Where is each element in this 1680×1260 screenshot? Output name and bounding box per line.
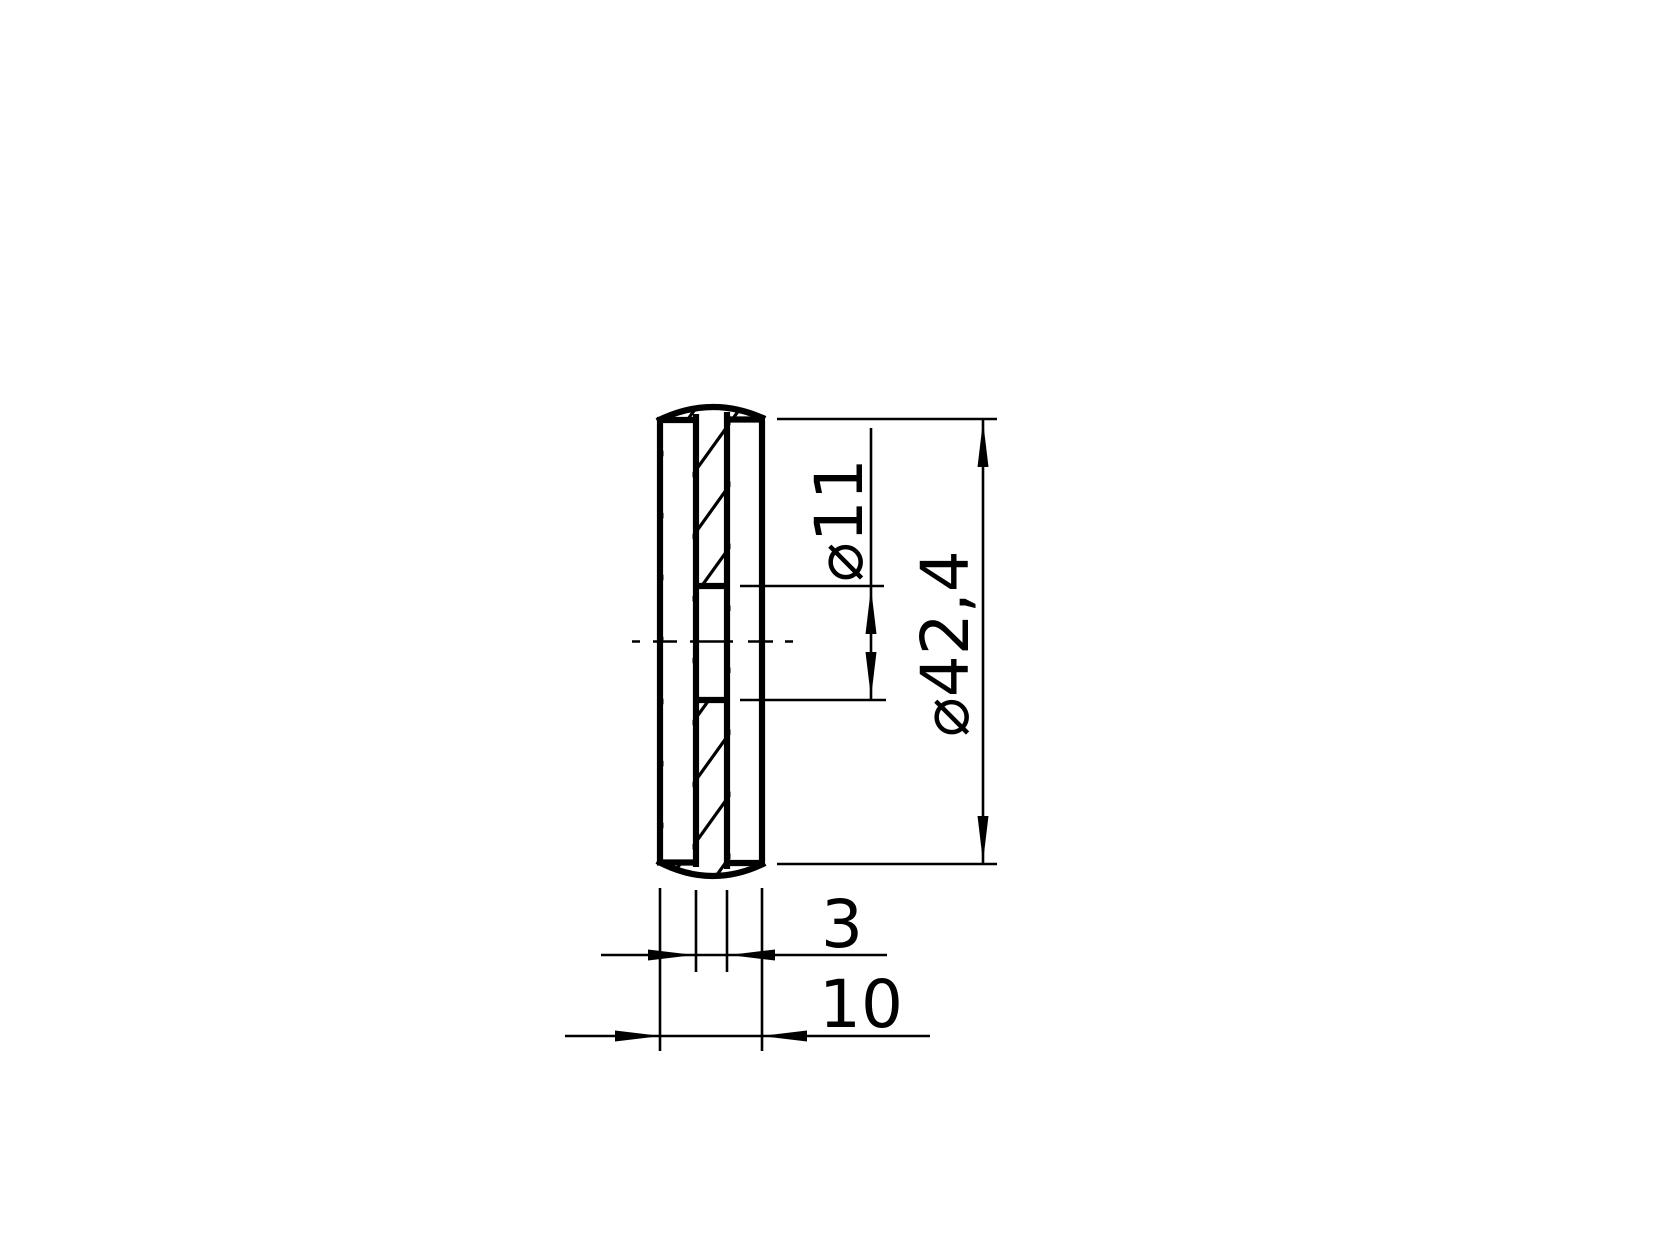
dim-text-outer-diameter: ⌀42,4 — [907, 550, 984, 737]
drawing-background — [0, 0, 1680, 1260]
drawing-canvas: ⌀11 ⌀42,4 3 10 — [0, 0, 1680, 1260]
dim-text-overall-thickness: 10 — [819, 966, 903, 1043]
dim-text-hole-diameter: ⌀11 — [801, 458, 878, 582]
technical-drawing: ⌀11 ⌀42,4 3 10 — [0, 0, 1680, 1260]
dim-text-wall-thickness: 3 — [821, 886, 863, 963]
